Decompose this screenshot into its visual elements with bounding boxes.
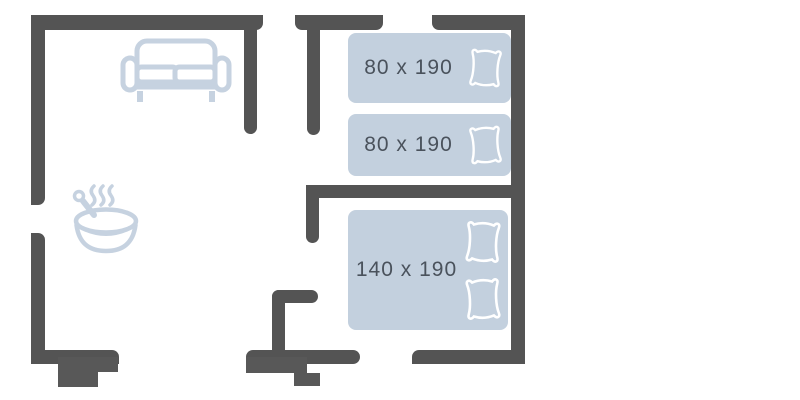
wall-hallway-left <box>244 15 257 134</box>
wall-bedroom-divider-v <box>306 185 319 243</box>
wall-bottom-right <box>412 350 525 364</box>
entrance-steps-left-tread-2 <box>58 372 98 387</box>
wall-left-upper <box>31 15 45 205</box>
sofa-icon <box>120 38 232 104</box>
wall-entry-v <box>272 290 285 364</box>
pillow-icon <box>468 122 504 168</box>
steam-icon <box>91 186 113 205</box>
wall-bedroom-divider-h <box>306 185 525 198</box>
wall-top-left <box>31 15 263 30</box>
bed-single-1: 80 x 190 <box>348 33 511 103</box>
pillow-icon <box>464 219 502 265</box>
pillow-icon <box>468 45 504 91</box>
entrance-steps-center-tread-1 <box>246 357 307 373</box>
bed-size-label: 80 x 190 <box>348 133 469 157</box>
bed-size-label: 140 x 190 <box>348 258 465 282</box>
frying-pan-icon <box>66 182 142 258</box>
pillow-icon <box>464 276 502 322</box>
entrance-steps-center-tread-2 <box>294 373 320 386</box>
floor-plan-canvas: 80 x 190 80 x 190 140 x 190 <box>0 0 800 400</box>
entrance-steps-left-tread-1 <box>58 357 118 372</box>
bed-single-2: 80 x 190 <box>348 114 511 176</box>
wall-hallway-right <box>307 15 320 135</box>
bed-size-label: 80 x 190 <box>348 56 469 80</box>
bed-double: 140 x 190 <box>348 210 508 330</box>
wall-left-lower <box>31 233 45 364</box>
